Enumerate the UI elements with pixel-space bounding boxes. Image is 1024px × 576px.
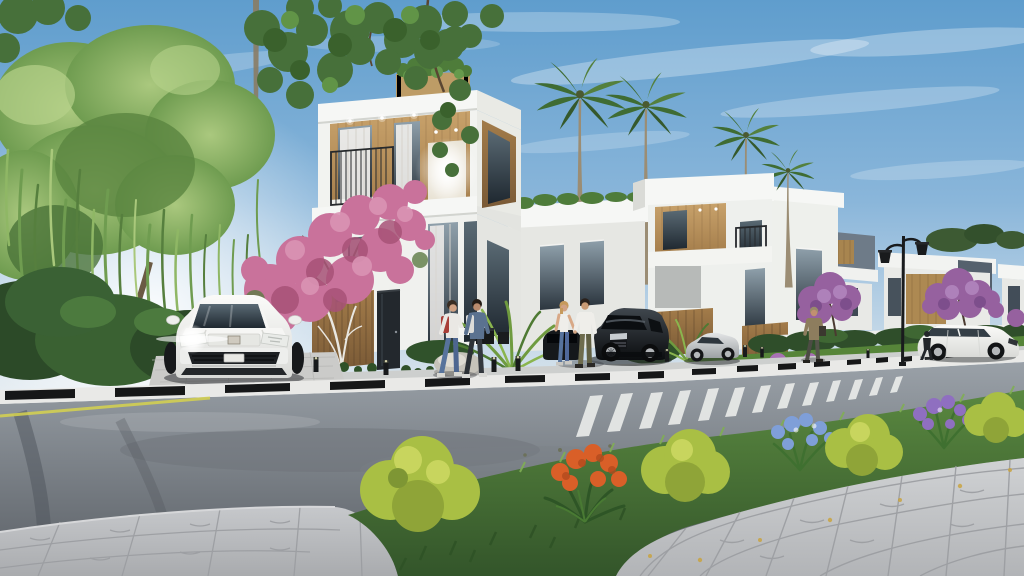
- render-viewport: [0, 0, 1024, 576]
- side-mirror: [167, 316, 180, 325]
- window-upper-1: [338, 125, 372, 204]
- entrance-door: [377, 290, 400, 370]
- suv-headlight: [610, 333, 627, 340]
- windshield: [192, 304, 266, 328]
- license-plate: [224, 354, 244, 362]
- villa-street-render: [0, 0, 1024, 576]
- grille-badge: [228, 336, 240, 344]
